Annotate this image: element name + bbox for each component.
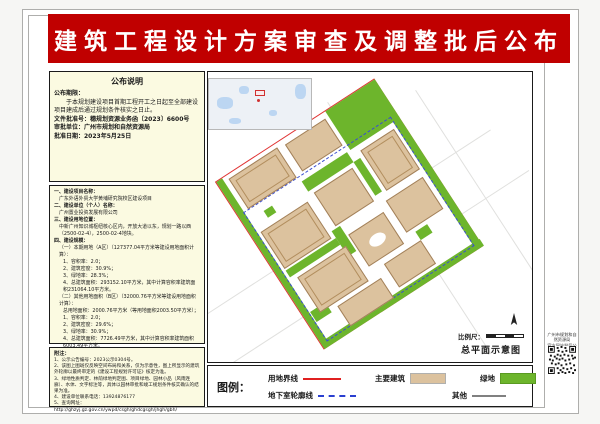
notice-line: 批准日期：2023年5月25日 [54,133,200,142]
notes-panel: 附注： 1、公示公告编号：2023公示0304号。2、该图上图斑仅反映空间布局和… [49,347,205,407]
detail-line: 二、建设单位（个人）名称： [54,203,200,210]
detail-line: 总用地面积：2000.76平方米（等用地面积2003.50平方米）； [54,308,200,315]
water-body [269,110,277,116]
detail-line: 1、容积率：2.0； [54,315,200,322]
legend-title: 图例： [217,379,250,395]
legend-label: 主要建筑 [375,373,405,384]
green-swatch [500,373,536,384]
site-location-dot [257,99,260,102]
note-line: 2、该图上图斑仅反映空间布局和关系，仅为示意性，图上所显示的建筑外轮廓以最终审定… [54,364,200,376]
detail-line: 广州置业投资发展有限公司 [54,210,200,217]
legend-label: 地下室轮廓线 [268,390,313,401]
legend-label: 用地界线 [268,373,298,384]
legend-item-underground: 地下室轮廓线 [268,390,356,401]
building-swatch [410,373,446,384]
page-title-text: 建筑工程设计方案审查及调整批后公布 [54,22,564,56]
water-body [229,118,241,124]
detail-line: 1、容积率：2.0； [54,259,200,266]
notes-lines: 1、公示公告编号：2023公示0304号。2、该图上图斑仅反映空间布局和关系，仅… [54,358,200,414]
scale-label: 比例尺： [458,331,484,341]
detail-line: （一）本期用地（A区）（127377.04平方米等建设用地面积计算）： [54,245,200,259]
location-inset-map [208,78,312,130]
north-arrow-icon [504,312,524,331]
red-line-symbol [303,378,341,380]
detail-line: 三、建设用地位置： [54,217,200,224]
notice-line: 公布期限： [54,90,200,99]
detail-line: 2、建筑密度：30.9%； [54,266,200,273]
courtyard-oval [367,230,389,250]
legend-item-boundary: 用地界线 [268,373,341,384]
site-plan-map: 比例尺： 总平面示意图 [207,71,533,363]
blue-dashed-symbol [318,395,356,397]
water-body [217,97,233,109]
gray-line-symbol [472,395,506,397]
map-meta: 比例尺： 总平面示意图 [458,312,524,356]
page-title: 建筑工程设计方案审查及调整批后公布 [48,14,570,63]
notice-panel-title: 公布说明 [54,76,200,87]
detail-line: 广东外语外贸大学黄埔研究院校区建设项目 [54,196,200,203]
qr-code [548,346,576,374]
detail-line: 四、建设规模： [54,238,200,245]
qr-caption-line1: 广州市规划和自然资源局 [546,332,578,343]
scale-bar [486,334,524,338]
note-line: 3、绿地性质判定、林荫绿地判定图、项目绿地、园林小品（风雨连廊）、水体、文字标注… [54,377,200,396]
detail-line: （二）其他用地面积（B区）（32000.76平方米等建设用地面积计算）： [54,294,200,308]
legend-item-other: 其他 [452,390,506,401]
notice-lines: 公布期限： 于本规划建设项目首期工程开工之日起至全部建设项目建成后通过规划条件核… [54,90,200,142]
detail-line: 4、总建筑面积：293152.10平方米，其中计算容积率建筑面积231064.1… [54,280,200,294]
detail-line: 3、绿地率：28.3%； [54,273,200,280]
project-details-lines: 一、建设项目名称：广东外语外贸大学黄埔研究院校区建设项目二、建设单位（个人）名称… [54,189,200,371]
legend-item-building: 主要建筑 [375,373,446,384]
notice-line: 于本规划建设项目首期工程开工之日起至全部建设项目建成后通过规划条件核实之日止。 [54,99,200,116]
legend-label: 其他 [452,390,467,401]
detail-line: 3、绿地率：30.9%； [54,329,200,336]
legend-label: 绿地 [480,373,495,384]
legend-bar: 图例： 用地界线 主要建筑 绿地 地下室轮廓线 其他 [207,365,533,407]
notice-panel: 公布说明 公布期限： 于本规划建设项目首期工程开工之日起至全部建设项目建成后通过… [49,71,205,182]
detail-line: 中新广州知识城枢纽核心区内，开放大道以东，规划一路以西（2500-02-4），2… [54,224,200,238]
detail-line: 2、建筑密度：29.6%； [54,322,200,329]
notes-label: 附注： [54,351,200,358]
qr-strip: 广州市规划和自然资源局 官方网站批后公布查询 [546,64,578,407]
project-details-panel: 一、建设项目名称：广东外语外贸大学黄埔研究院校区建设项目二、建设单位（个人）名称… [49,185,205,344]
water-body [295,84,306,99]
site-location-marker [255,90,265,96]
note-line: 5、查询网址：http://ghzyj.gz.gov.cn/ywpd/csgh/… [54,401,200,413]
notice-line: 审批单位：广州市规划和自然资源局 [54,124,200,133]
water-body [239,86,249,94]
detail-line: 一、建设项目名称： [54,189,200,196]
map-caption: 总平面示意图 [458,343,524,356]
legend-item-green: 绿地 [480,373,536,384]
